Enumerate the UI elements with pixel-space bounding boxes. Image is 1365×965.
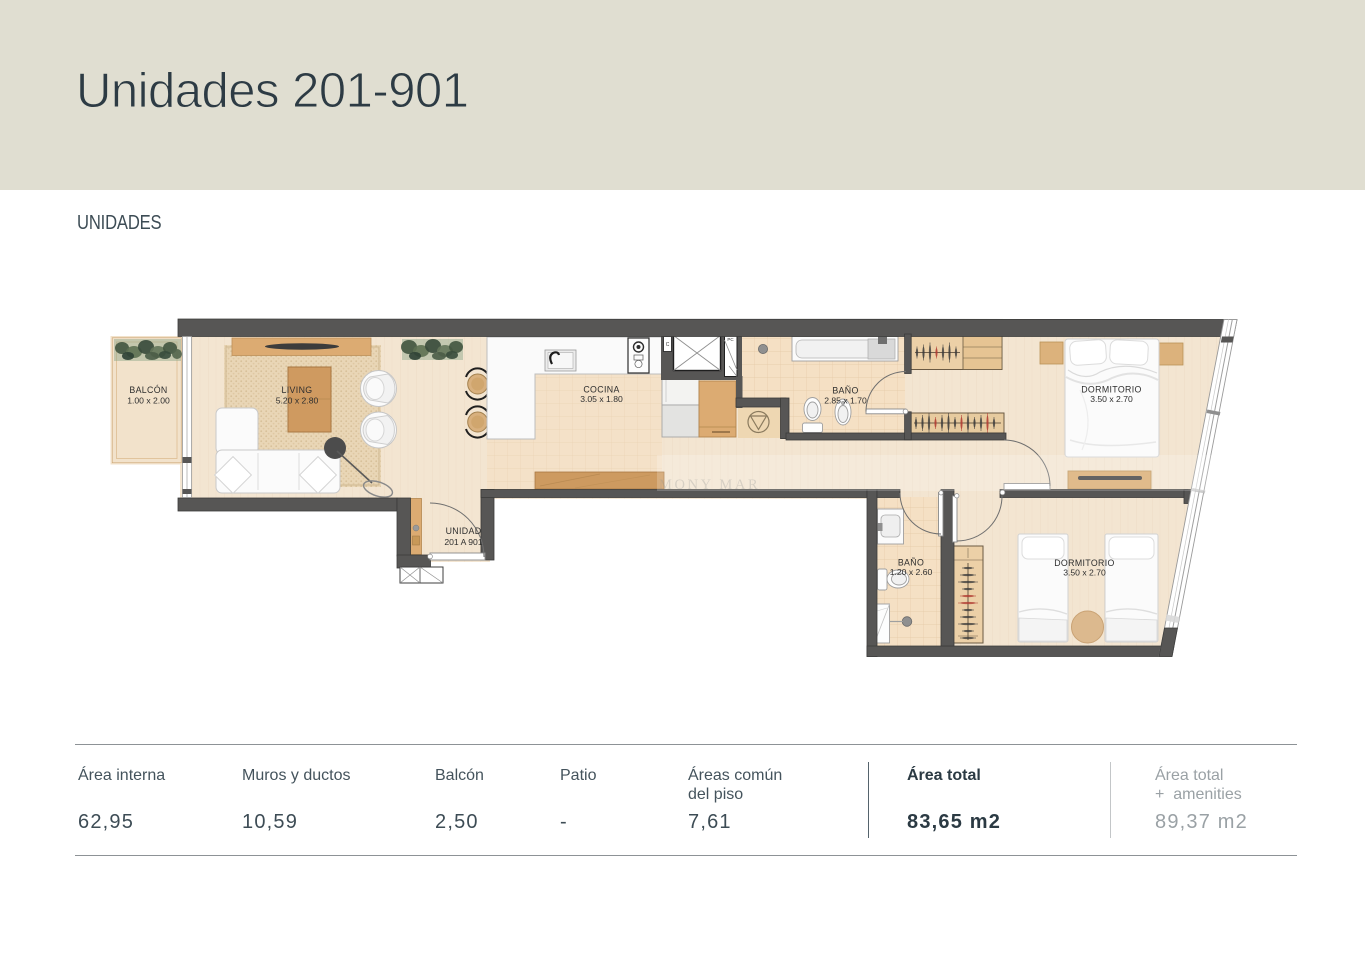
svg-text:3.50 x 2.70: 3.50 x 2.70 xyxy=(1090,394,1133,404)
svg-text:3.50 x 2.70: 3.50 x 2.70 xyxy=(1063,568,1106,578)
svg-text:1.00 x 2.00: 1.00 x 2.00 xyxy=(127,396,170,406)
svg-text:1.20 x 2.60: 1.20 x 2.60 xyxy=(890,567,933,577)
svg-text:UNIDAD: UNIDAD xyxy=(446,526,482,536)
svg-text:5.20 x 2.80: 5.20 x 2.80 xyxy=(276,396,319,406)
svg-text:201 A 901: 201 A 901 xyxy=(444,537,482,547)
svg-text:BALCÓN: BALCÓN xyxy=(129,385,167,395)
svg-text:PC: PC xyxy=(727,337,734,342)
svg-text:BAÑO: BAÑO xyxy=(832,386,858,396)
svg-text:3.05 x 1.80: 3.05 x 1.80 xyxy=(580,394,623,404)
svg-text:DORMITORIO: DORMITORIO xyxy=(1054,558,1115,568)
svg-text:DORMITORIO: DORMITORIO xyxy=(1081,385,1142,395)
svg-text:BAÑO: BAÑO xyxy=(898,558,924,568)
svg-text:2.85 x 1.70: 2.85 x 1.70 xyxy=(824,396,867,406)
svg-text:MONY MAR: MONY MAR xyxy=(659,477,760,493)
svg-text:COCINA: COCINA xyxy=(583,385,619,395)
svg-text:C: C xyxy=(666,342,670,348)
svg-text:LIVING: LIVING xyxy=(282,385,313,395)
